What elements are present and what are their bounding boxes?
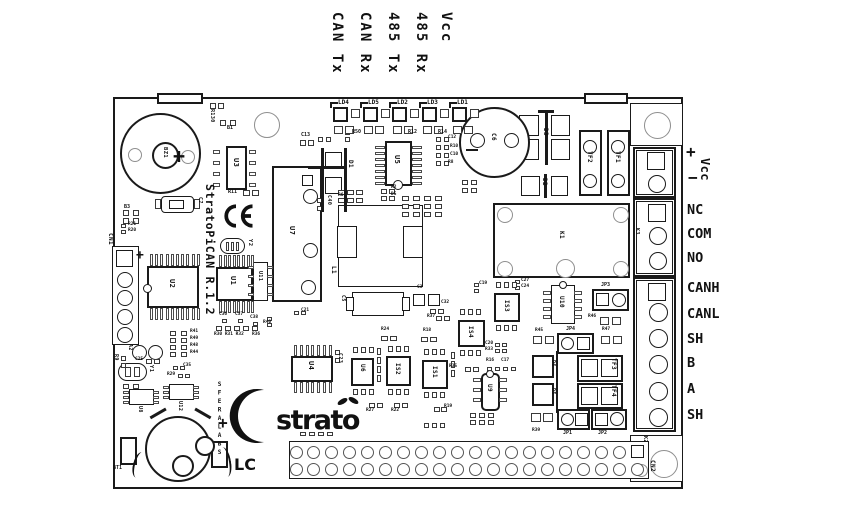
ic-pin [499,398,507,402]
pad [356,190,363,195]
ref-label-c36: C36 [219,313,227,318]
ref-label-cn2: CN2 [649,460,655,472]
ic-pin [375,146,385,149]
ref-label-r48: R48 [190,344,198,349]
ref-label-tf4: TF4 [610,385,616,397]
ref-label-is3: IS3 [503,300,509,312]
ref-label-r40: R40 [263,321,271,326]
board-name-text: StratoPiCAN R.1.2 [204,184,216,315]
pad [440,423,445,428]
silk-circle [117,290,133,306]
gpio-pin [290,446,303,459]
pad [464,126,473,134]
ref-label-a: A [687,383,695,397]
ic-pin [213,172,220,176]
ref-label-c6: C6 [490,133,496,141]
pad [470,420,476,425]
ic-pin [176,308,179,320]
gpio-pin [325,446,338,459]
pad [543,413,553,422]
u7-body [272,166,322,302]
gpio-pin [379,463,392,476]
ic-pin [193,386,199,389]
gpio-pin [523,446,536,459]
silk-rect [428,294,440,306]
ref-label-ld5: LD5 [368,100,379,106]
silk-circle [613,261,629,277]
pad [369,347,374,353]
silk-rect [302,175,313,186]
ic-pin [181,308,184,320]
led-ld5 [363,107,378,122]
ic-pin [166,308,169,320]
ref-label-485-tx: 485 Tx [386,12,400,75]
pad [436,137,441,142]
ref-label-r21: R21 [128,223,136,228]
pad [438,309,444,314]
ref-label-r41: R41 [190,330,198,335]
pad [402,196,409,201]
ic-pin [375,158,385,161]
silk-rect [346,297,354,311]
trace-line [344,148,347,212]
pad [404,346,409,352]
ic-pin [248,293,254,296]
ic-pin [197,308,200,320]
pad [396,389,401,395]
ref-label-r50: R50 [352,130,361,135]
silk-circle [649,329,668,348]
pad [533,336,542,344]
pad [347,198,354,203]
gpio-pin [595,446,608,459]
silk-circle [143,284,152,293]
pad [377,357,381,364]
ic-pin [543,291,551,295]
trace-line [308,166,346,169]
ref-label-jp2: JP2 [598,431,607,436]
ref-label-is1: IS1 [431,366,437,378]
ref-label-c27: C27 [521,279,529,284]
ref-label-r14: R14 [438,130,447,135]
ref-label-tf1: TF1 [614,151,620,163]
ic-pin [150,308,153,320]
ic-pin [574,307,582,311]
pad [222,319,227,323]
ref-label-r12: R12 [408,130,417,135]
ref-label-ld3: LD3 [427,100,438,106]
gpio-pin [451,463,464,476]
pad [345,137,350,142]
ic-pin [213,161,220,165]
cn2-gpio-header [289,441,649,479]
pad [495,343,500,347]
ref-label-c40: C40 [326,195,331,205]
ic-pin [412,164,422,167]
silk-rect [595,413,608,426]
ref-label--: + [136,249,144,262]
pad [133,384,139,389]
silk-circle [172,455,194,477]
pad [435,204,442,209]
led-ld4 [333,107,348,122]
ref-label-r29: R29 [167,373,175,378]
gpio-pin [307,463,320,476]
gpio-pin [613,446,626,459]
gpio-pin [415,446,428,459]
ic-pin [306,382,309,393]
ic-pin [219,255,222,267]
ref-label-cn1: CN1 [107,233,113,245]
pad [243,190,250,196]
ref-label-is4: IS4 [467,326,473,338]
ref-label-ld1: LD1 [457,100,468,106]
silk-circle [128,148,142,162]
pad [375,126,384,134]
silk-rect [551,139,570,160]
gpio-pin [505,463,518,476]
ref-label-u11: U11 [257,271,262,281]
gpio-pin [343,463,356,476]
silk-rect [581,387,598,405]
pad [231,242,234,251]
ic-pin [224,255,227,267]
ic-pin [574,299,582,303]
gpio-pin [397,463,410,476]
pad [381,189,387,194]
silk-rect [521,176,540,196]
pad [369,389,374,395]
ref-label-u6: U6 [359,364,365,372]
ref-label-c13: C13 [301,133,310,138]
ic-pin [123,396,129,399]
pad [444,145,449,150]
ref-label--: + [686,144,696,160]
pad [236,242,239,251]
silk-circle [613,207,629,223]
ref-label-k1: K1 [558,231,564,239]
pad [432,423,437,428]
strato-logo-text: strato [276,407,359,434]
ic-pin [186,254,189,266]
ic-pin [155,308,158,320]
pad [423,126,432,134]
silk-rect [551,115,570,136]
ic-pin [267,275,273,278]
silk-circle [504,133,519,148]
pad [600,317,609,325]
pad [479,420,485,425]
pad [146,359,152,364]
pad [502,349,507,353]
ref-label-bt1: BT1 [113,466,122,471]
ref-label-r19: R19 [444,405,452,410]
pad [364,126,373,134]
u12-body [169,384,194,400]
ref-label-d5: D5 [550,388,555,395]
pad [121,230,126,234]
led-ld1 [452,107,467,122]
pad [353,347,358,353]
ic-pin [543,299,551,303]
ref-label-c38: C38 [250,316,258,321]
mounting-hole [254,112,280,138]
silk-rect [596,293,609,306]
ic-pin [237,255,240,267]
pad [381,336,388,341]
pad [396,346,401,352]
ref-label-u10: U10 [558,296,564,308]
ref-label-u1: U1 [229,276,236,285]
ic-pin [412,170,422,173]
gpio-pin [487,446,500,459]
silk-rect [413,294,425,306]
ref-label-sh: SH [687,409,703,423]
led-bracket [449,102,451,108]
ic-pin [248,275,254,278]
ref-label-r6: R6 [338,194,343,199]
ic-pin [375,170,385,173]
ref-label-r47: R47 [602,328,610,333]
silk-circle [583,174,597,188]
ic-pin [412,158,422,161]
pad [503,367,508,371]
ic-pin [311,382,314,393]
ref-label-c20: C20 [485,342,493,347]
pad [381,196,387,201]
ref-label-c24: C24 [521,285,529,290]
silk-circle [303,243,318,258]
pad [424,212,431,217]
silk-rect [402,297,410,311]
ref-label-u2: U2 [168,279,175,288]
silk-rect [551,176,568,196]
mounting-hole [644,112,671,139]
battery-type-label: LC [234,457,256,473]
silk-circle [556,259,575,278]
silk-rect [403,226,423,258]
ic-pin [267,266,273,269]
ref-label-r35: R35 [449,365,457,370]
ref-label-b1: B1 [227,126,233,131]
ref-label-c32: C32 [441,301,449,306]
pad [502,343,507,347]
pad [155,199,161,209]
pad [377,348,381,355]
ic-pin [543,307,551,311]
pad [460,309,465,315]
pad [181,345,187,350]
ref-label-r36: R36 [252,333,260,338]
ic-pin [375,176,385,179]
ref-label-u9: U9 [486,384,492,392]
pad [393,126,402,134]
pad [121,224,126,228]
pad [531,413,541,422]
ic-pin [160,254,163,266]
ref-label-c5: C5 [340,295,345,302]
ref-label-u7: U7 [288,226,295,235]
silk-rect [169,200,184,209]
ic-pin [473,378,481,382]
ic-pin [233,255,236,267]
pad [216,326,222,331]
trace-line [321,148,324,212]
pad [381,109,390,118]
ic-pin [228,301,231,313]
pad [468,350,473,356]
ref-label-r20: R20 [128,229,136,234]
pad [601,336,610,344]
ref-label-k2: K2 [642,436,647,443]
pad [413,212,420,217]
ic-pin [499,378,507,382]
ic-pin [574,315,582,319]
gpio-pin [559,446,572,459]
gpio-pin [487,463,500,476]
ref-label-jp4: JP4 [566,327,575,332]
pad [308,140,314,146]
ref-label-485-rx: 485 Rx [414,12,428,75]
ref-label-b: B [687,357,695,371]
ic-pin [473,388,481,392]
ref-label-r46: R46 [588,315,596,320]
ic-pin [300,345,303,356]
ref-label-r2: R2 [391,186,396,191]
pad [460,350,465,356]
silk-circle [561,337,574,350]
pad [432,392,437,398]
pad [436,145,441,150]
ic-pin [317,382,320,393]
silk-rect [337,226,357,258]
ic-pin [329,345,332,356]
pad [170,352,176,357]
ic-pin [412,176,422,179]
silk-circle [649,382,668,401]
ref-label-r8: R8 [448,161,453,166]
ref-label-r24: R24 [381,328,389,333]
ref-label-ld4: LD4 [338,100,349,106]
pad [444,316,450,321]
gpio-pin [397,446,410,459]
ref-label-r44: R44 [190,351,198,356]
ref-label-d2: D2 [541,178,547,186]
ref-label-c7: C7 [197,197,202,204]
ref-label-k3: K3 [634,228,639,235]
pad [487,367,492,371]
pad [377,375,381,382]
ref-label-c19: C19 [479,282,487,287]
led-bracket [419,102,421,108]
ic-pin [193,396,199,399]
pad [347,190,354,195]
ic-pin [248,266,254,269]
gpio-pin [415,463,428,476]
ic-pin [153,401,159,404]
pad [181,331,187,336]
ref-label-r30-r31-r32: R30 R31 R32 [214,333,244,338]
ref-label-is2: IS2 [394,363,400,375]
silk-circle [486,370,494,378]
ic-pin [412,152,422,155]
ref-label-a2: A2 [127,344,132,351]
silk-rect [253,262,268,301]
ref-label-y1: Y1 [148,365,154,372]
ref-label-jp1: JP1 [563,431,572,436]
ic-pin [166,254,169,266]
ref-label-r27: R27 [366,409,374,414]
ic-pin [499,388,507,392]
gpio-pin [379,446,392,459]
ref-label-c3: C3 [417,286,422,291]
led-bracket [360,102,362,108]
pad [377,403,383,408]
ic-pin [267,293,273,296]
ic-pin [248,284,254,287]
pad [318,137,323,142]
pad [125,367,131,377]
trace-line [556,351,558,413]
pad [178,374,183,378]
pad [465,367,471,372]
pad [495,367,500,371]
pad [479,413,485,418]
led-bracket [389,102,391,108]
ref-label-c10: C10 [450,153,458,158]
ref-label-r9: R9 [113,354,118,361]
pad [470,413,476,418]
silk-rect [581,359,598,377]
gpio-pin [290,463,303,476]
ref-label-d1: D1 [347,160,353,168]
ref-label-r16: R16 [486,359,494,364]
pad [462,180,468,185]
pad [243,326,249,331]
pad [451,352,455,359]
gpio-pin [307,446,320,459]
ref-label-canh: CANH [687,282,720,296]
silk-circle [117,309,133,325]
pad [121,356,126,361]
pad [424,392,429,398]
ic-pin [300,382,303,393]
ref-label-r18: R18 [423,329,431,334]
gpio-pin [631,463,644,476]
ref-label-com: COM [687,228,711,242]
pad [361,389,366,395]
ref-label-r33: R33 [485,348,493,353]
ic-pin [323,382,326,393]
gpio-pin [613,463,626,476]
silk-circle [301,280,316,295]
ref-label-sh: SH [687,333,703,347]
pad [185,374,190,378]
pad [432,349,437,355]
ic-pin [242,255,245,267]
pad [512,282,517,288]
ic-pin [294,345,297,356]
pad [495,349,500,353]
ref-label-c23: C23 [337,353,342,363]
pad [476,350,481,356]
pad [436,316,442,321]
pad [421,337,428,342]
silk-rect [575,413,588,426]
pad [476,309,481,315]
silk-circle [303,189,318,204]
ref-label-tf2: TF2 [586,151,592,163]
